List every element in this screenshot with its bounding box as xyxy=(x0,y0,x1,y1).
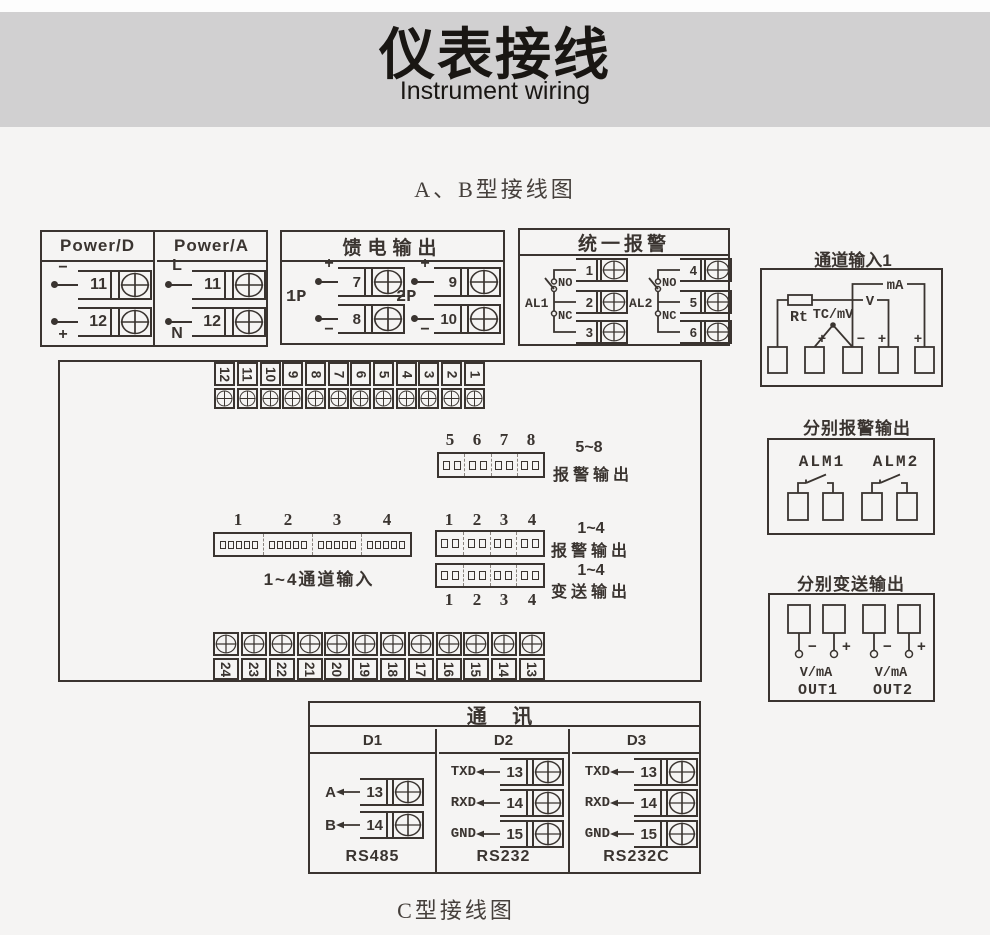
pin xyxy=(399,541,405,549)
signal-label: GND xyxy=(576,826,610,842)
pin xyxy=(495,461,502,470)
tc-mv-label: TC/mV xyxy=(813,308,854,323)
connector-section xyxy=(517,532,543,555)
main-terminal-box: 12 11 10 9 8 7 6 5 4 3 2 1 5 6 7 8 5~8 报… xyxy=(58,360,702,682)
screw-terminal: 5 xyxy=(680,290,732,314)
screw-icon xyxy=(305,388,326,409)
pin-number: 2 xyxy=(473,510,482,530)
screw-terminal: 2 xyxy=(576,290,628,314)
wire xyxy=(319,281,338,283)
screw-icon xyxy=(328,388,349,409)
pin xyxy=(506,461,513,470)
plus-sign: + xyxy=(842,638,851,655)
feed-output-title: 馈电输出 xyxy=(282,232,503,262)
signal-label: RXD xyxy=(442,795,476,811)
v-ma-label: V/mA xyxy=(875,666,908,681)
pin xyxy=(228,541,234,549)
signal-label: GND xyxy=(442,826,476,842)
screw-icon xyxy=(352,632,378,656)
screw-icon xyxy=(408,632,434,656)
minus-sign: − xyxy=(857,330,865,346)
pin xyxy=(468,571,475,580)
plus-sign: + xyxy=(878,330,886,346)
channel-input-diagram: Rt TC/mV V mA + − + + xyxy=(762,270,941,385)
connector-section xyxy=(464,565,491,586)
terminal-divider xyxy=(224,309,234,335)
strip-terminal: 5 xyxy=(373,362,394,409)
pin xyxy=(443,461,450,470)
wire xyxy=(415,318,434,320)
relay-al2-label: AL2 xyxy=(629,296,653,311)
pin xyxy=(452,539,459,548)
terminal-number: 22 xyxy=(269,658,295,680)
pin xyxy=(468,539,475,548)
screw-icon xyxy=(213,632,239,656)
comm-row: TXD 13 xyxy=(442,758,564,786)
plus-sign: + xyxy=(320,255,338,273)
pin xyxy=(532,571,539,580)
terminal-number: 13 xyxy=(360,780,386,804)
screw-terminal: 14 xyxy=(360,811,424,839)
terminal-number: 14 xyxy=(360,813,386,837)
terminal-number: 4 xyxy=(396,362,417,386)
separate-transmit-diagram: − + − + V/mA V/mA OUT1 OUT2 xyxy=(770,595,933,700)
screw-icon xyxy=(519,632,545,656)
screw-terminal: 14 xyxy=(634,789,698,817)
pin xyxy=(505,571,512,580)
screw-icon xyxy=(602,292,626,312)
screw-terminal: 12 xyxy=(78,307,152,337)
pin-number: 6 xyxy=(473,430,482,450)
screw-icon xyxy=(469,269,499,295)
pin xyxy=(342,541,348,549)
comm-row: TXD 13 xyxy=(576,758,698,786)
strip-terminal: 17 xyxy=(408,632,434,680)
separate-transmit-title: 分别变送输出 xyxy=(797,570,905,595)
connector-section xyxy=(465,454,491,476)
wire xyxy=(55,321,78,323)
arrow-left-icon xyxy=(476,798,500,808)
terminal-number: 21 xyxy=(297,658,323,680)
strip-terminal: 10 xyxy=(260,362,281,409)
terminal-number: 23 xyxy=(241,658,267,680)
connector-section xyxy=(492,454,518,476)
transmit-1-4-connector xyxy=(435,563,545,588)
minus-sign: − xyxy=(320,321,338,339)
strip-terminal: 18 xyxy=(380,632,406,680)
connector-section xyxy=(313,534,362,555)
screw-terminal: 11 xyxy=(192,270,266,300)
terminal-number: 11 xyxy=(78,272,110,298)
screw-icon xyxy=(418,388,439,409)
screw-terminal: 14 xyxy=(500,789,564,817)
terminal-divider xyxy=(386,780,394,804)
connector-section xyxy=(491,565,518,586)
screw-terminal: 4 xyxy=(680,258,732,282)
channel-input-box: Rt TC/mV V mA + − + + xyxy=(760,268,943,387)
strip-terminal: 7 xyxy=(328,362,349,409)
screw-icon xyxy=(668,791,696,815)
strip-terminal: 15 xyxy=(463,632,489,680)
terminal-divider xyxy=(526,791,534,815)
wire xyxy=(169,321,192,323)
comm-row: RXD 14 xyxy=(442,789,564,817)
strip-terminal: 6 xyxy=(350,362,371,409)
screw-terminal: 3 xyxy=(576,320,628,344)
terminal-divider xyxy=(526,760,534,784)
minus-sign: − xyxy=(808,638,817,655)
strip-terminal: 4 xyxy=(396,362,417,409)
screw-icon xyxy=(214,388,235,409)
pin xyxy=(293,541,299,549)
group-2p-label: 2P xyxy=(396,288,414,307)
pin-number: 1 xyxy=(445,590,454,610)
terminal-divider xyxy=(460,306,469,332)
signal-label: TXD xyxy=(576,764,610,780)
comm-row: B 14 xyxy=(318,811,424,839)
terminal-divider xyxy=(660,791,668,815)
comm-d2-footer: RS232 xyxy=(439,848,568,866)
power-d-title: Power/D xyxy=(42,232,153,262)
terminal-divider xyxy=(386,813,394,837)
pin xyxy=(285,541,291,549)
terminal-number: 3 xyxy=(576,322,596,342)
pin xyxy=(441,571,448,580)
wire xyxy=(169,284,192,286)
terminal-divider xyxy=(364,306,373,332)
alarm-5-8-range: 5~8 xyxy=(575,439,602,457)
connector-section xyxy=(215,534,264,555)
screw-icon xyxy=(668,760,696,784)
relay-no-label: NO xyxy=(662,276,676,290)
strip-terminal: 3 xyxy=(418,362,439,409)
pin xyxy=(383,541,389,549)
strip-terminal: 19 xyxy=(352,632,378,680)
v-ma-label: V/mA xyxy=(800,666,833,681)
screw-icon xyxy=(120,309,150,335)
line-l-label: L xyxy=(168,257,186,275)
screw-terminal: 11 xyxy=(78,270,152,300)
terminal-number: 8 xyxy=(305,362,326,386)
arrow-left-icon xyxy=(610,767,634,777)
pin xyxy=(334,541,340,549)
screw-terminal: 15 xyxy=(634,820,698,848)
terminal-number: 15 xyxy=(500,822,526,846)
pin-number: 3 xyxy=(333,510,342,530)
pin xyxy=(532,461,539,470)
minus-sign: − xyxy=(54,259,72,277)
pin xyxy=(375,541,381,549)
screw-icon xyxy=(241,632,267,656)
strip-terminal: 2 xyxy=(441,362,462,409)
minus-sign: − xyxy=(883,638,892,655)
arrow-left-icon xyxy=(476,767,500,777)
screw-terminal: 12 xyxy=(192,307,266,337)
alarm-5-8-connector xyxy=(437,452,545,478)
terminal-number: 4 xyxy=(680,260,700,280)
screw-icon xyxy=(120,272,150,298)
screw-icon xyxy=(282,388,303,409)
terminal-number: 7 xyxy=(338,269,364,295)
relay-nc-label: NC xyxy=(662,309,676,323)
alarm-1-4-range: 1~4 xyxy=(577,520,604,538)
v-label: V xyxy=(866,294,875,310)
connector-section xyxy=(437,565,464,586)
screw-terminal: 13 xyxy=(634,758,698,786)
screw-terminal: 6 xyxy=(680,320,732,344)
terminal-divider xyxy=(460,269,469,295)
pin xyxy=(494,571,501,580)
pin xyxy=(480,461,487,470)
terminal-number: 19 xyxy=(352,658,378,680)
channel-1-4-caption: 1~4通道输入 xyxy=(264,565,375,590)
connector-section xyxy=(362,534,410,555)
relay-no-label: NO xyxy=(558,276,572,290)
pin xyxy=(244,541,250,549)
signal-label: A xyxy=(318,784,336,801)
terminal-number: 12 xyxy=(78,309,110,335)
pin-number: 1 xyxy=(234,510,243,530)
screw-icon xyxy=(396,388,417,409)
section-title-c: C型接线图 xyxy=(0,893,990,925)
pin xyxy=(494,539,501,548)
terminal-number: 9 xyxy=(434,269,460,295)
strip-terminal: 8 xyxy=(305,362,326,409)
screw-icon xyxy=(234,272,264,298)
terminal-number: 1 xyxy=(464,362,485,386)
strip-terminal: 11 xyxy=(237,362,258,409)
pin xyxy=(220,541,226,549)
terminal-number: 6 xyxy=(680,322,700,342)
terminal-divider xyxy=(526,822,534,846)
connector-section xyxy=(491,532,518,555)
separate-alarm-box: ALM1 ALM2 xyxy=(767,438,935,535)
strip-terminal: 20 xyxy=(324,632,350,680)
connector-section xyxy=(518,454,543,476)
pin xyxy=(301,541,307,549)
pin-number: 3 xyxy=(500,590,509,610)
terminal-number: 5 xyxy=(373,362,394,386)
channel-1-4-connector xyxy=(213,532,412,557)
alm2-label: ALM2 xyxy=(873,453,919,471)
plus-sign: + xyxy=(818,330,826,346)
pin xyxy=(521,571,528,580)
screw-icon xyxy=(350,388,371,409)
screw-icon xyxy=(463,632,489,656)
screw-icon xyxy=(602,322,626,342)
signal-label: TXD xyxy=(442,764,476,780)
screw-icon xyxy=(324,632,350,656)
screw-terminal: 13 xyxy=(500,758,564,786)
comm-row: GND 15 xyxy=(442,820,564,848)
arrow-left-icon xyxy=(610,829,634,839)
screw-terminal: 8 xyxy=(338,304,405,334)
connector-section xyxy=(264,534,313,555)
screw-terminal: 7 xyxy=(338,267,405,297)
comm-d1-header: D1 xyxy=(310,729,435,754)
screw-terminal: 1 xyxy=(576,258,628,282)
pin xyxy=(441,539,448,548)
screw-icon xyxy=(602,260,626,280)
terminal-number: 13 xyxy=(519,658,545,680)
terminal-number: 13 xyxy=(500,760,526,784)
pin xyxy=(505,539,512,548)
screw-icon xyxy=(706,292,730,312)
pin xyxy=(252,541,258,549)
feed-output-box: 馈电输出 1P + 7 − 8 2P + 9 − 10 xyxy=(280,230,505,345)
strip-terminal: 24 xyxy=(213,632,239,680)
comm-d3-footer: RS232C xyxy=(572,848,701,866)
pin xyxy=(521,539,528,548)
comm-row: RXD 14 xyxy=(576,789,698,817)
pin xyxy=(452,571,459,580)
pin xyxy=(391,541,397,549)
alarm-1-4-caption: 报警输出 xyxy=(551,537,631,561)
terminal-divider xyxy=(110,272,120,298)
comm-row: GND 15 xyxy=(576,820,698,848)
alarm-5-8-caption: 报警输出 xyxy=(553,461,633,485)
terminal-number: 9 xyxy=(282,362,303,386)
relay-nc-label: NC xyxy=(558,309,572,323)
strip-terminal: 1 xyxy=(464,362,485,409)
signal-label: B xyxy=(318,817,336,834)
terminal-number: 24 xyxy=(213,658,239,680)
screw-icon xyxy=(441,388,462,409)
line-n-label: N xyxy=(168,325,186,343)
screw-terminal: 13 xyxy=(360,778,424,806)
plus-sign: + xyxy=(416,255,434,273)
connector-section xyxy=(437,532,464,555)
terminal-number: 10 xyxy=(260,362,281,386)
pin xyxy=(318,541,324,549)
screw-icon xyxy=(260,388,281,409)
terminal-number: 2 xyxy=(576,292,596,312)
ma-label: mA xyxy=(887,278,904,294)
connector-section xyxy=(439,454,465,476)
terminal-divider xyxy=(660,822,668,846)
pin xyxy=(367,541,373,549)
comm-d3-header: D3 xyxy=(572,729,701,754)
wiring-diagram-page: 仪表接线 Instrument wiring A、B型接线图 Power/D P… xyxy=(0,0,990,935)
pin-number: 2 xyxy=(473,590,482,610)
terminal-number: 11 xyxy=(192,272,224,298)
screw-icon xyxy=(297,632,323,656)
wire xyxy=(55,284,78,286)
terminal-number: 12 xyxy=(192,309,224,335)
group-1p-label: 1P xyxy=(286,288,304,307)
strip-terminal: 14 xyxy=(491,632,517,680)
terminal-divider xyxy=(224,272,234,298)
screw-icon xyxy=(706,260,730,280)
connector-section xyxy=(517,565,543,586)
terminal-number: 10 xyxy=(434,306,460,332)
pin-number: 4 xyxy=(528,590,537,610)
screw-icon xyxy=(491,632,517,656)
wire xyxy=(319,318,338,320)
screw-icon xyxy=(469,306,499,332)
strip-terminal: 23 xyxy=(241,632,267,680)
terminal-number: 14 xyxy=(491,658,517,680)
terminal-number: 17 xyxy=(408,658,434,680)
comm-row: A 13 xyxy=(318,778,424,806)
screw-terminal: 9 xyxy=(434,267,501,297)
relay-symbol-al2: AL2 NO NC xyxy=(628,258,680,344)
terminal-divider xyxy=(110,309,120,335)
screw-icon xyxy=(373,306,403,332)
page-title: 仪表接线 xyxy=(0,12,990,84)
pin xyxy=(277,541,283,549)
separate-alarm-diagram: ALM1 ALM2 xyxy=(769,440,933,533)
out2-label: OUT2 xyxy=(873,682,913,699)
transmit-1-4-caption: 变送输出 xyxy=(551,578,631,602)
strip-terminal: 12 xyxy=(214,362,235,409)
alarm-1-4-connector xyxy=(435,530,545,557)
terminal-number: 15 xyxy=(463,658,489,680)
pin-number: 7 xyxy=(500,430,509,450)
screw-icon xyxy=(269,632,295,656)
pin xyxy=(521,461,528,470)
screw-icon xyxy=(534,760,562,784)
terminal-number: 14 xyxy=(634,791,660,815)
terminal-number: 18 xyxy=(380,658,406,680)
screw-icon xyxy=(237,388,258,409)
connector-section xyxy=(464,532,491,555)
strip-terminal: 9 xyxy=(282,362,303,409)
comm-title: 通 讯 xyxy=(310,703,699,727)
relay-al1-label: AL1 xyxy=(525,296,549,311)
terminal-number: 15 xyxy=(634,822,660,846)
relay-symbol-al1: AL1 NO NC xyxy=(524,258,576,344)
arrow-left-icon xyxy=(610,798,634,808)
screw-terminal: 10 xyxy=(434,304,501,334)
signal-label: RXD xyxy=(576,795,610,811)
pin xyxy=(236,541,242,549)
pin-number: 8 xyxy=(527,430,536,450)
screw-icon xyxy=(394,813,422,837)
screw-icon xyxy=(534,791,562,815)
screw-icon xyxy=(373,388,394,409)
screw-terminal: 15 xyxy=(500,820,564,848)
strip-terminal: 22 xyxy=(269,632,295,680)
pin xyxy=(454,461,461,470)
pin-number: 5 xyxy=(446,430,455,450)
arrow-left-icon xyxy=(476,829,500,839)
comm-d1-footer: RS485 xyxy=(310,848,435,866)
terminal-number: 13 xyxy=(634,760,660,784)
pin xyxy=(350,541,356,549)
pin-number: 1 xyxy=(445,510,454,530)
terminal-number: 11 xyxy=(237,362,258,386)
terminal-number: 8 xyxy=(338,306,364,332)
plus-sign: + xyxy=(54,326,72,344)
top-white-strip xyxy=(0,0,990,12)
terminal-number: 6 xyxy=(350,362,371,386)
pin xyxy=(479,571,486,580)
terminal-number: 7 xyxy=(328,362,349,386)
screw-icon xyxy=(394,780,422,804)
screw-icon xyxy=(436,632,462,656)
terminal-number: 5 xyxy=(680,292,700,312)
plus-sign: + xyxy=(914,330,922,346)
screw-icon xyxy=(668,822,696,846)
strip-terminal: 13 xyxy=(519,632,545,680)
strip-terminal: 21 xyxy=(297,632,323,680)
comm-d2-header: D2 xyxy=(439,729,568,754)
comm-box: 通 讯 D1 RS485 D2 RS232 D3 RS232C A 13 B 1… xyxy=(308,701,701,874)
pin-number: 4 xyxy=(528,510,537,530)
pin-number: 4 xyxy=(383,510,392,530)
pin xyxy=(269,541,275,549)
